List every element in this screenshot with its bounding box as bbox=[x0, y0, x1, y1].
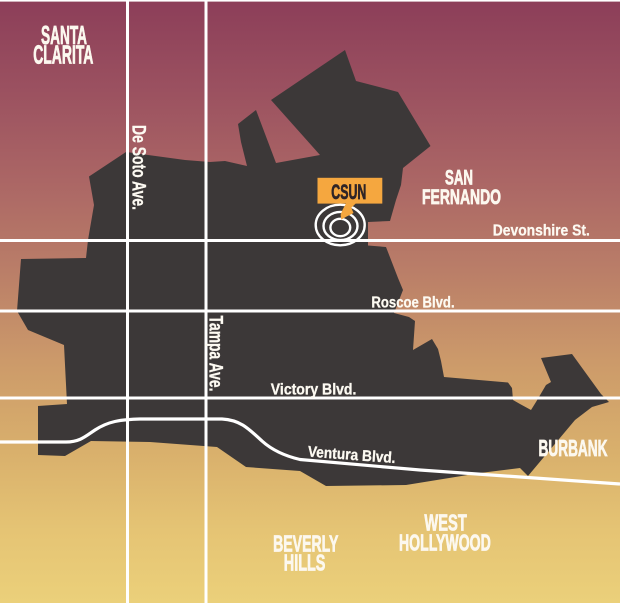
svg-text:HILLS: HILLS bbox=[284, 550, 326, 576]
svg-text:De Soto Ave.: De Soto Ave. bbox=[128, 125, 149, 210]
svg-text:Devonshire St.: Devonshire St. bbox=[493, 222, 590, 239]
svg-text:BURBANK: BURBANK bbox=[539, 435, 608, 461]
svg-text:CLARITA: CLARITA bbox=[33, 41, 93, 69]
svg-text:Victory Blvd.: Victory Blvd. bbox=[271, 382, 357, 399]
svg-text:Roscoe Blvd.: Roscoe Blvd. bbox=[371, 294, 454, 311]
svg-text:FERNANDO: FERNANDO bbox=[422, 186, 501, 209]
svg-text:HOLLYWOOD: HOLLYWOOD bbox=[399, 530, 491, 556]
svg-text:Tampa Ave.: Tampa Ave. bbox=[205, 316, 226, 392]
svg-text:CSUN: CSUN bbox=[331, 181, 366, 204]
